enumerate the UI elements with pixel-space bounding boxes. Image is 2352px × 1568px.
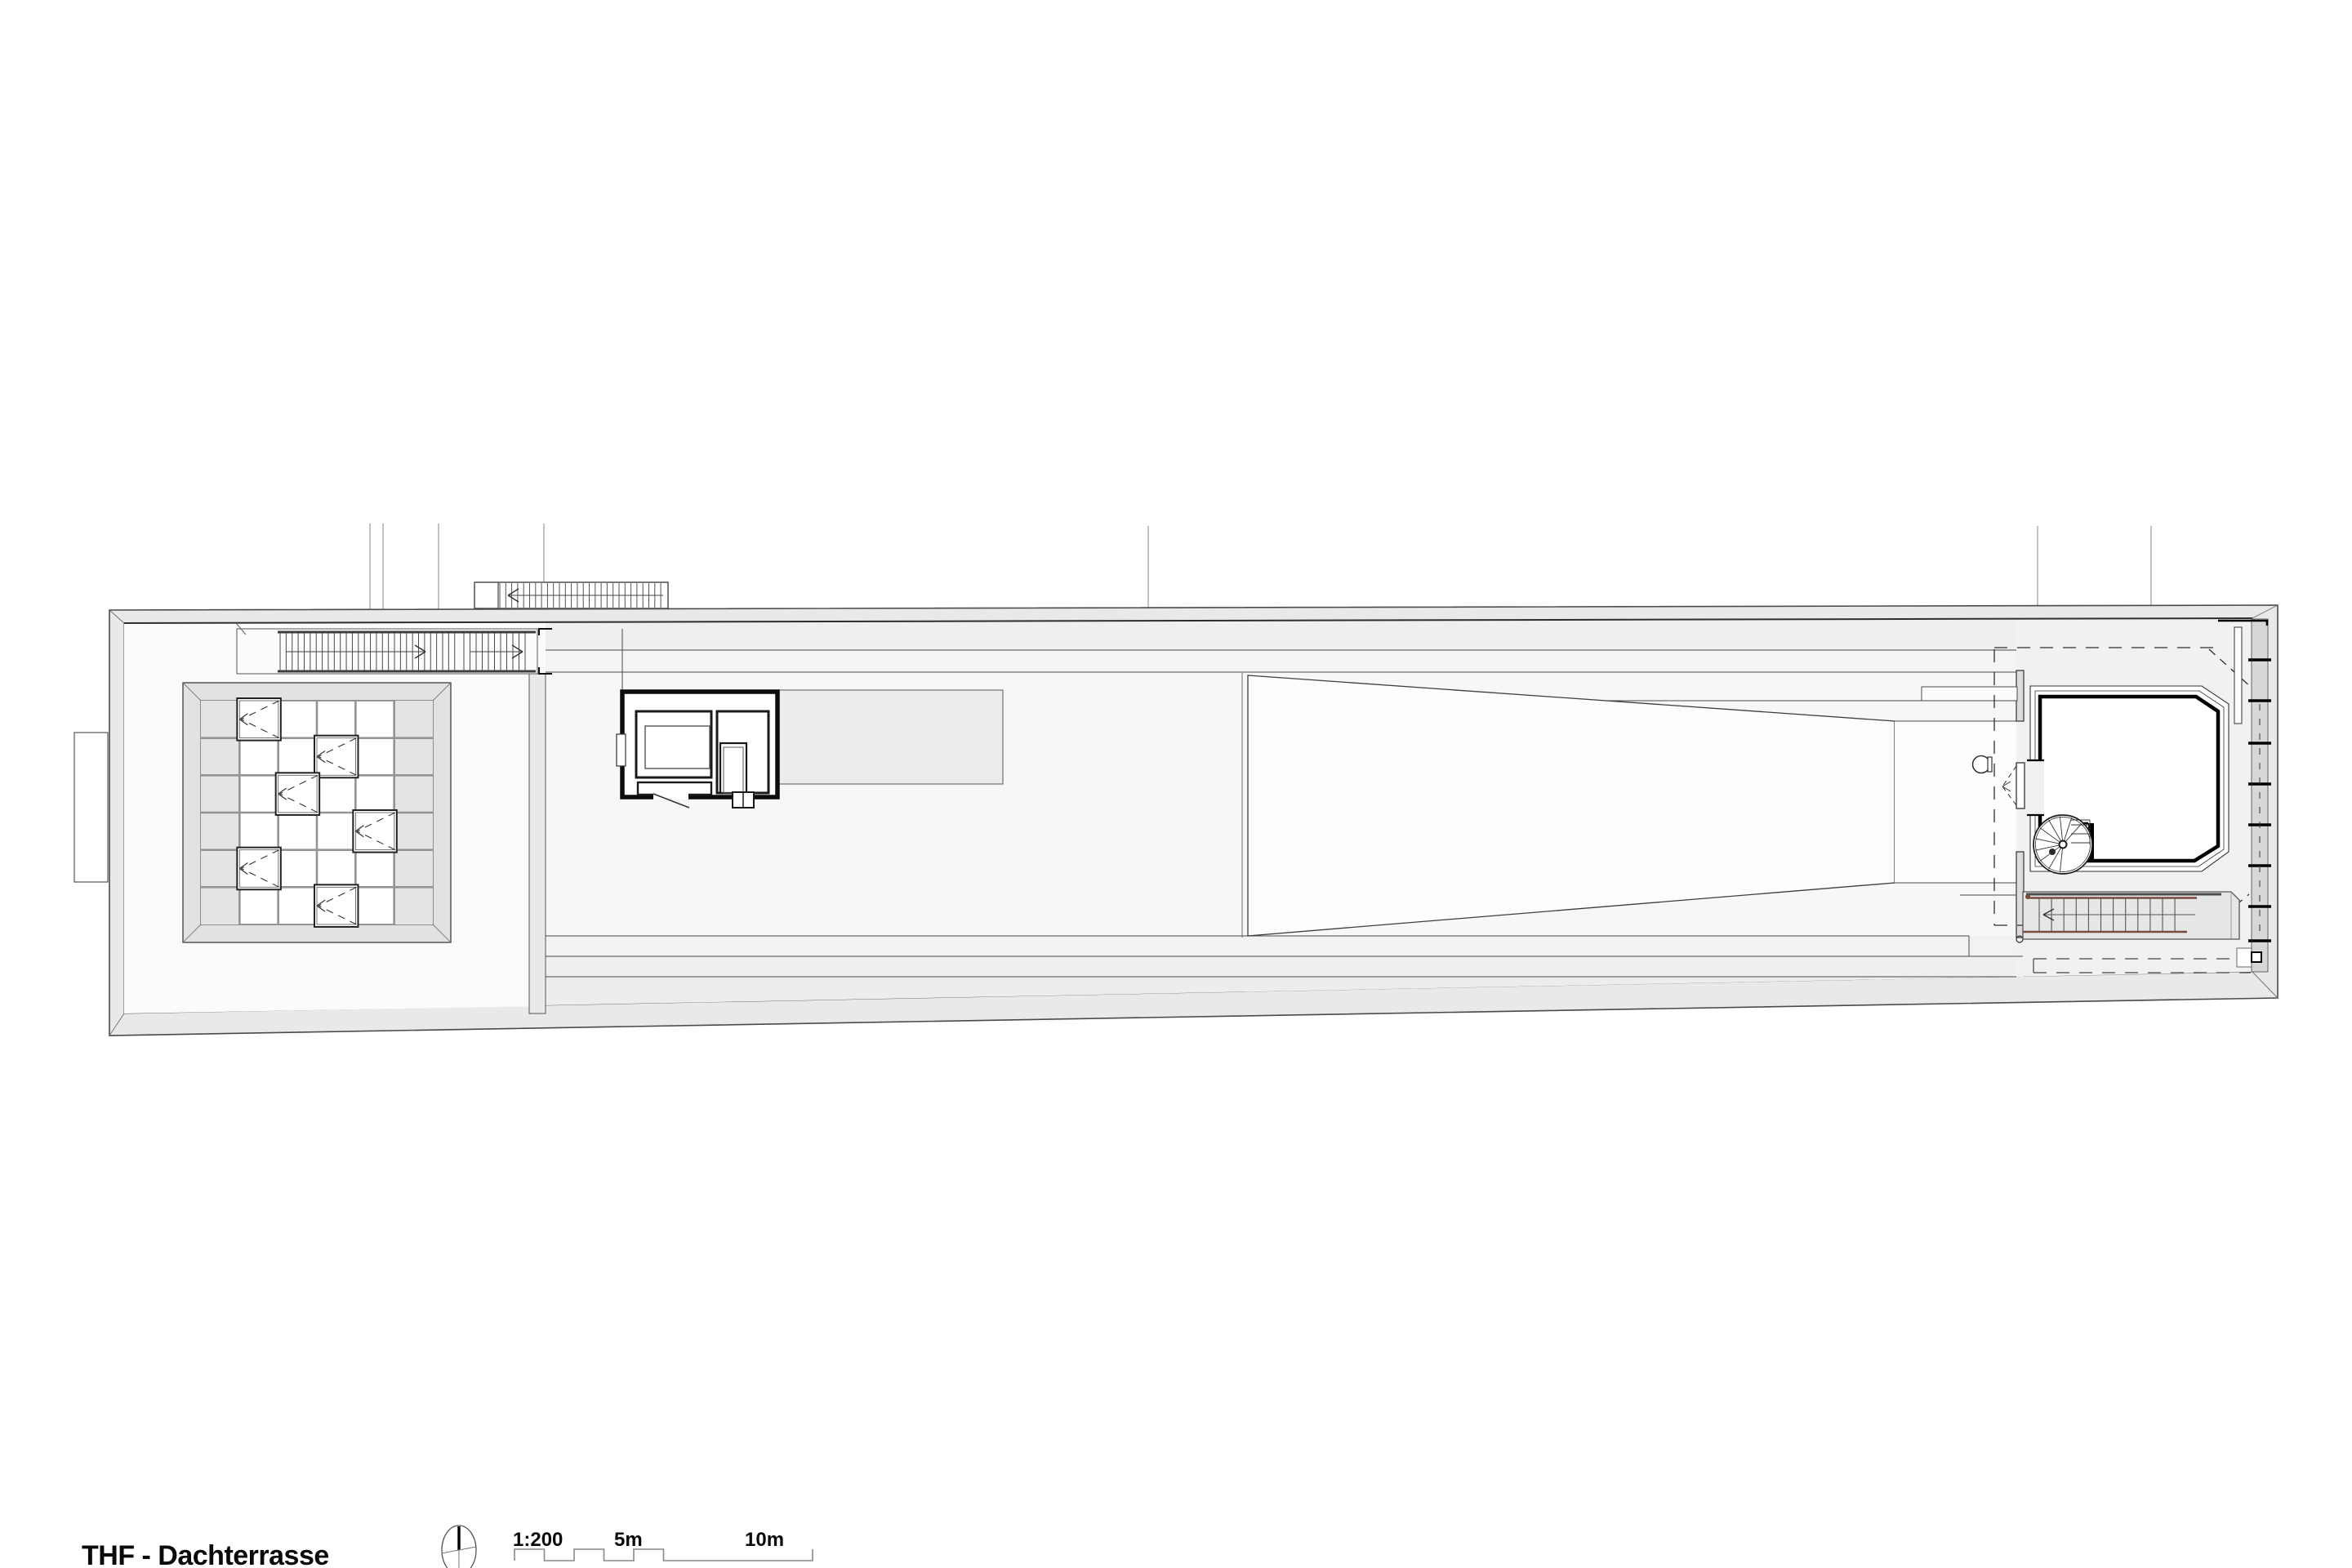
bench-northeast	[1922, 687, 2017, 701]
skylight-openable-panel	[314, 736, 358, 778]
court-east-wall	[529, 674, 546, 1013]
north-arrow-icon	[442, 1526, 476, 1568]
gray-roof-deck	[777, 690, 1003, 784]
skylight-openable-panel	[276, 773, 319, 815]
southeast-stair	[2023, 892, 2239, 939]
scale-end-label: 10m	[745, 1529, 784, 1551]
skylight-openable-panel	[353, 810, 396, 853]
turret-door-leaf	[2016, 763, 2025, 808]
skylight-openable-panel	[237, 848, 280, 890]
glazing-panel	[2234, 627, 2242, 724]
drawing-title: THF - Dachterrasse	[82, 1540, 329, 1568]
turret-room	[2002, 686, 2229, 874]
roof-access-stair	[474, 582, 668, 608]
bollard	[1973, 756, 1993, 773]
skylight-openable-panel	[237, 698, 280, 741]
spiral-stair	[2033, 815, 2092, 874]
skylight-grid	[183, 683, 451, 942]
equipment-unit	[636, 711, 711, 777]
scale-ratio-label: 1:200	[513, 1529, 563, 1551]
roof-plan-canvas: THF - Dachterrasse 1:200 5m 10m	[0, 0, 2352, 1568]
skylight-openable-panel	[314, 884, 358, 927]
court-stair	[236, 623, 552, 674]
scale-mid-label: 5m	[614, 1529, 643, 1551]
wall-recess	[617, 734, 626, 766]
west-ledge	[74, 733, 108, 882]
drawing-sheet: THF - Dachterrasse 1:200 5m 10m	[0, 0, 2352, 1568]
machine-room	[617, 692, 777, 808]
